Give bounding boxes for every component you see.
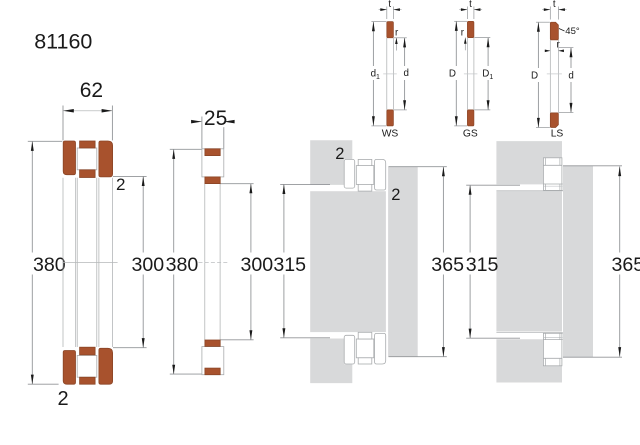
svg-text:D: D xyxy=(531,71,538,82)
svg-text:WS: WS xyxy=(382,129,399,140)
svg-text:380: 380 xyxy=(166,254,199,276)
svg-text:d: d xyxy=(404,68,409,79)
svg-text:25: 25 xyxy=(204,107,227,130)
svg-text:d: d xyxy=(568,71,573,82)
svg-text:365: 365 xyxy=(612,254,640,276)
svg-text:81160: 81160 xyxy=(34,29,92,53)
svg-text:LS: LS xyxy=(551,129,564,140)
svg-text:t: t xyxy=(388,0,391,10)
svg-text:45°: 45° xyxy=(565,26,580,37)
svg-text:315: 315 xyxy=(466,254,499,276)
svg-text:2: 2 xyxy=(391,186,400,204)
svg-text:2: 2 xyxy=(58,388,69,410)
svg-text:62: 62 xyxy=(80,79,103,102)
svg-text:300: 300 xyxy=(132,254,165,276)
svg-text:2: 2 xyxy=(116,175,125,194)
svg-text:315: 315 xyxy=(273,254,306,276)
svg-text:D: D xyxy=(449,69,456,80)
svg-text:t: t xyxy=(469,0,472,10)
svg-text:380: 380 xyxy=(33,254,66,276)
svg-text:2: 2 xyxy=(335,145,344,163)
svg-text:t: t xyxy=(553,0,556,10)
svg-text:365: 365 xyxy=(431,254,464,276)
svg-text:GS: GS xyxy=(463,129,478,140)
svg-text:300: 300 xyxy=(241,254,274,276)
